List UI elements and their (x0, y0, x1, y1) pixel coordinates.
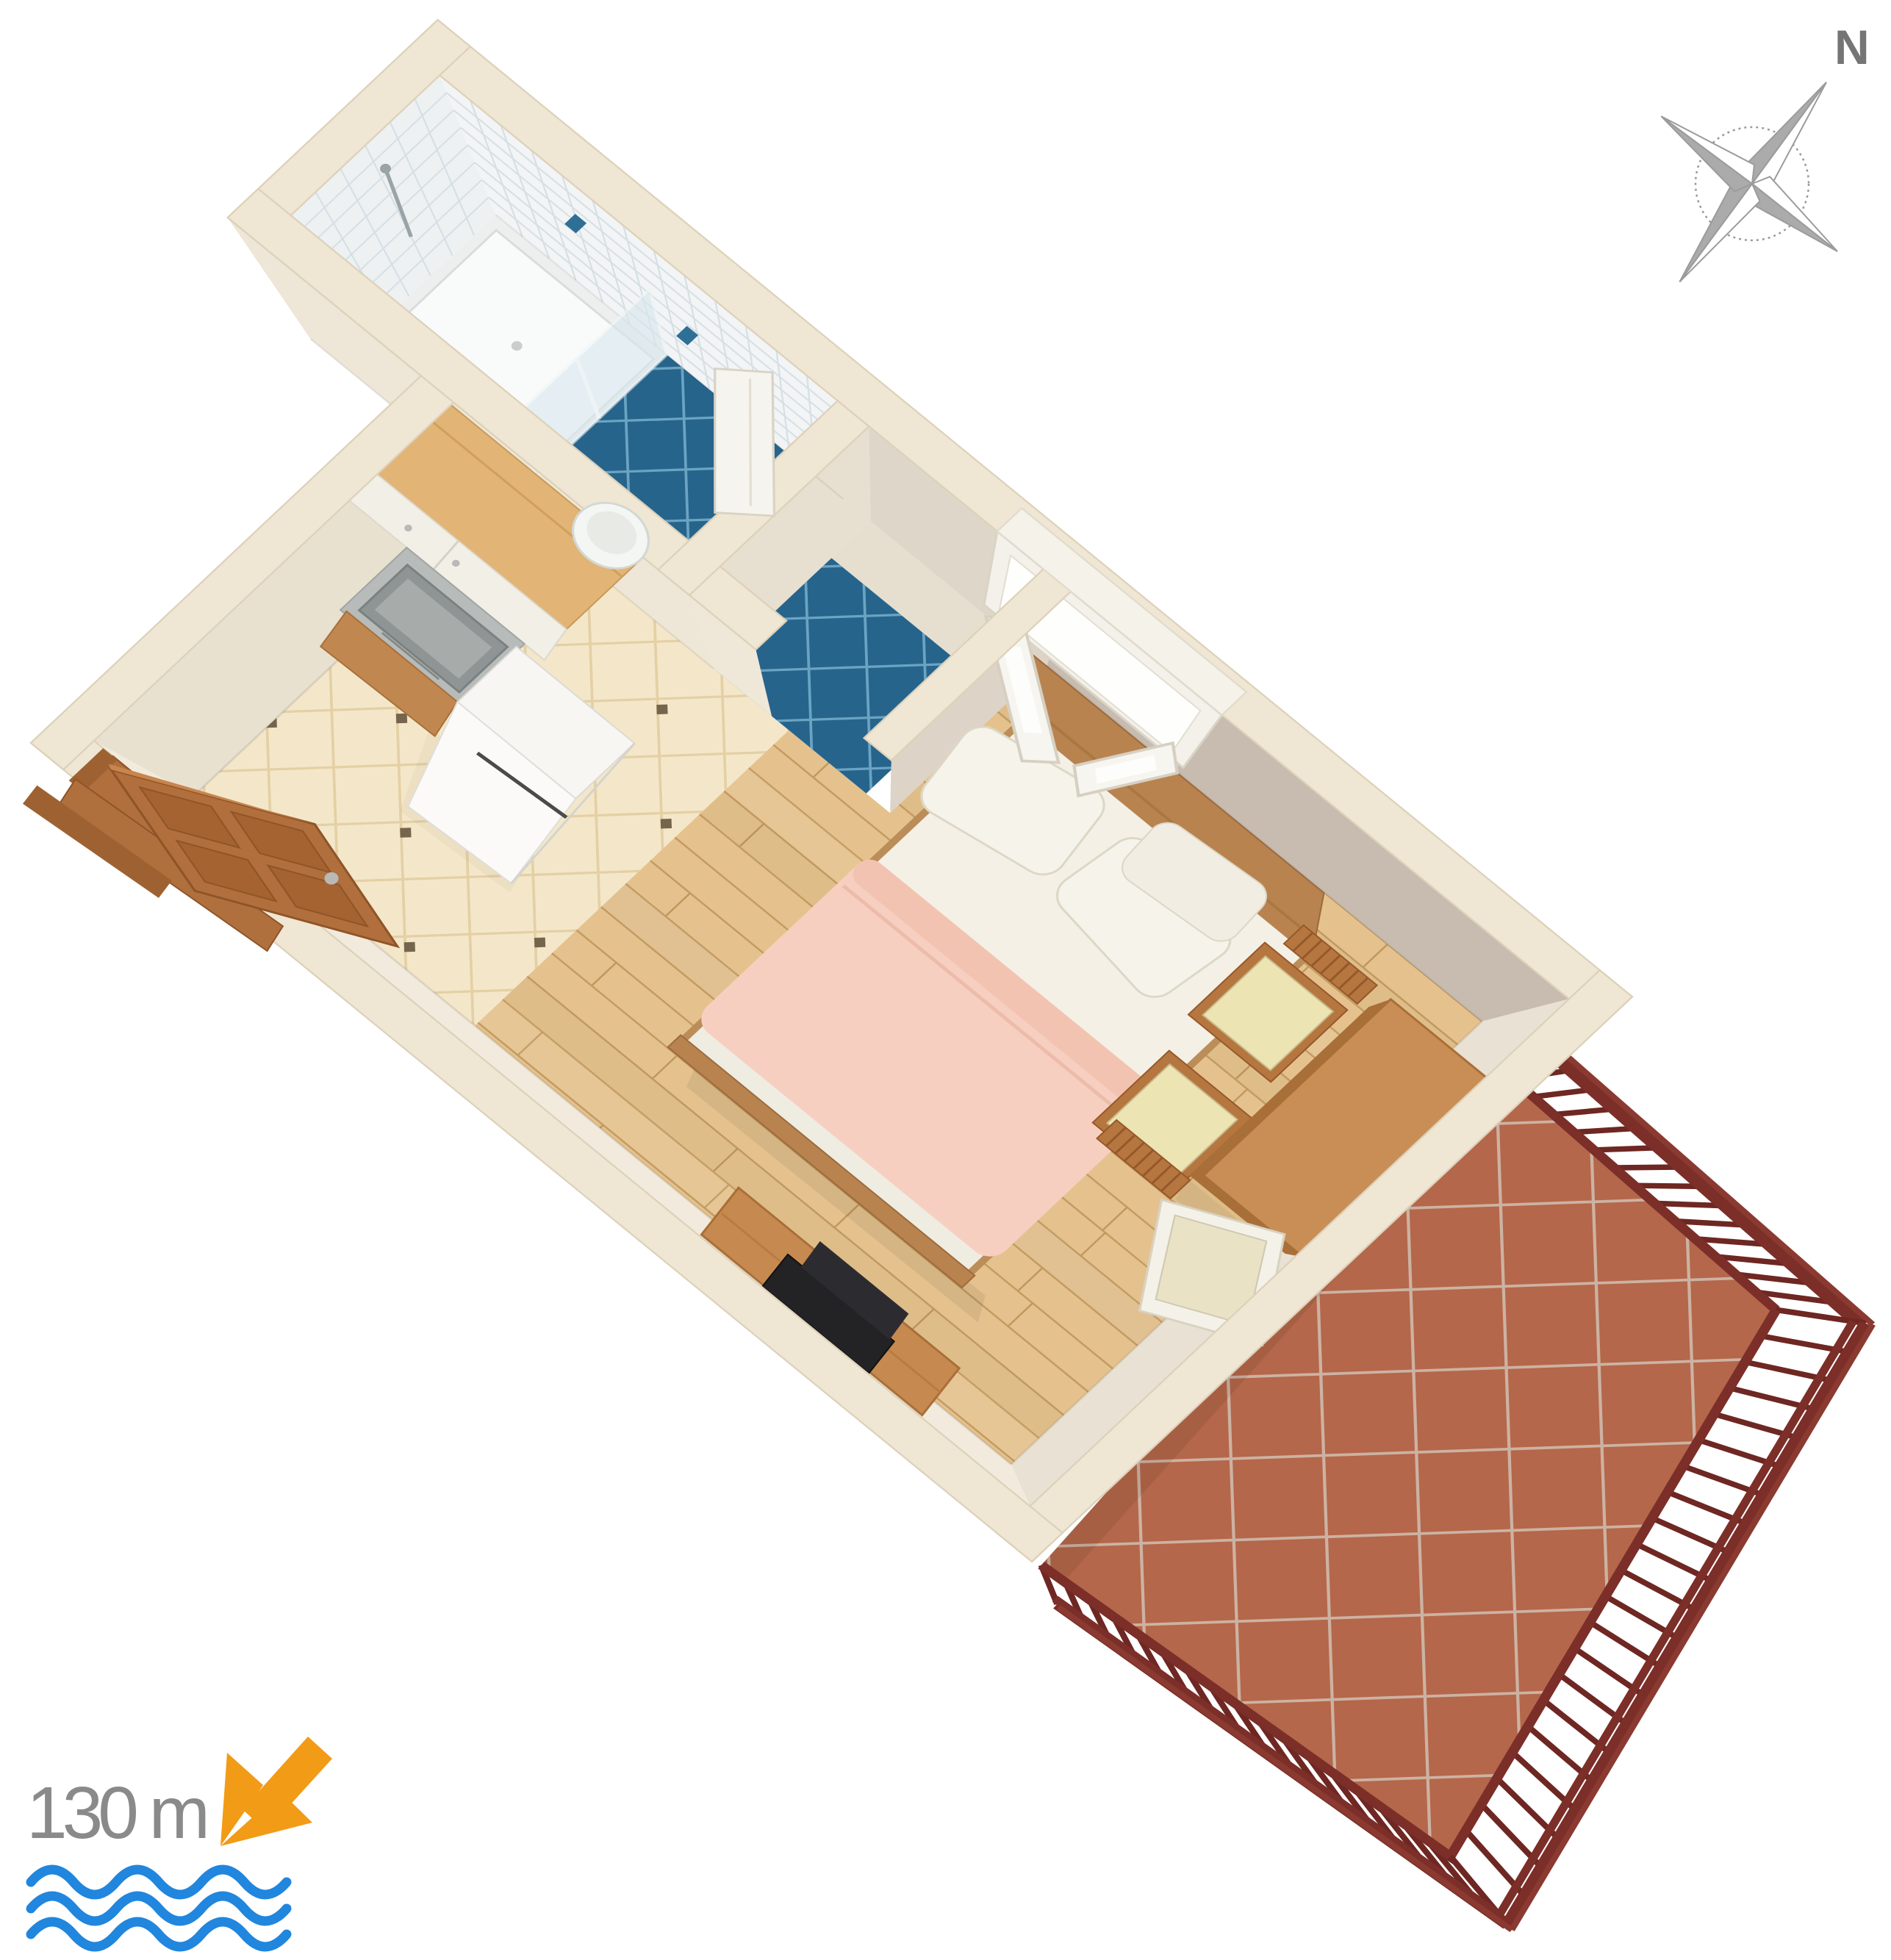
svg-text:N: N (1834, 20, 1870, 74)
svg-text:130 m: 130 m (26, 1772, 206, 1854)
